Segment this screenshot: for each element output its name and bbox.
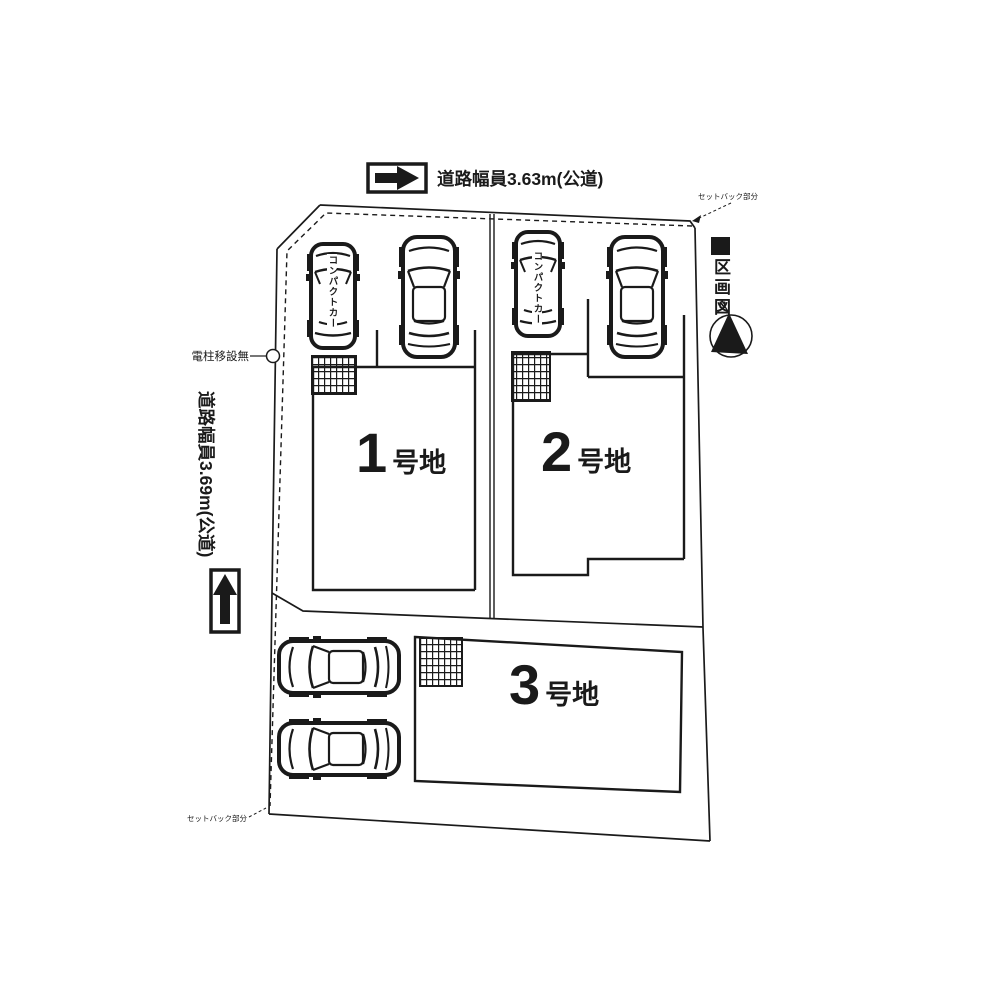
lot2-label: 2号地 (541, 420, 631, 483)
setback-top-label: セットバック部分 (698, 191, 758, 201)
lot2-compact-car-label: コンパクトカー (532, 250, 542, 326)
legend-title: 区画図 (708, 258, 733, 318)
lot2-suffix: 号地 (577, 447, 631, 477)
lot1-suffix: 号地 (392, 448, 446, 478)
setback-top-arrowhead (692, 215, 701, 223)
lot1-hatch-area (312, 356, 356, 394)
setback-top-pointer (695, 203, 731, 220)
setback-bottom-pointer (249, 808, 266, 817)
legend-square-icon (711, 237, 730, 255)
lot3-area-divider (272, 593, 703, 627)
setback-bottom-label: セットバック部分 (187, 813, 247, 823)
lot1-compact-car-label: コンパクトカー (327, 254, 337, 330)
lot1-number: 1 (356, 421, 387, 484)
lot1-lot2-divider (490, 214, 494, 618)
road-direction-arrow-top (368, 164, 426, 192)
utility-pole-icon (267, 350, 280, 363)
lot-plan-drawing: 道路幅員3.63m(公道) セットバック部分 セットバック部分 電柱移設無 N (0, 0, 1000, 990)
lot2-number: 2 (541, 420, 572, 483)
pole-note-label: 電柱移設無 (192, 349, 250, 363)
lot3-suffix: 号地 (545, 680, 599, 710)
lot3-sedan-car-icon-2 (279, 718, 399, 780)
lot3-hatch-area (420, 638, 462, 686)
road-width-top-label: 道路幅員3.63m(公道) (437, 169, 603, 189)
lot3-label: 3号地 (509, 653, 599, 716)
lot3-sedan-car-icon-1 (279, 636, 399, 698)
road-direction-arrow-left (211, 570, 239, 632)
lot3-number: 3 (509, 653, 540, 716)
site-plan-canvas: 道路幅員3.63m(公道) セットバック部分 セットバック部分 電柱移設無 N (0, 0, 1000, 990)
lot1-sedan-car-icon (398, 237, 460, 357)
lot1-label: 1号地 (356, 421, 446, 484)
road-width-left-label: 道路幅員3.69m(公道) (194, 391, 219, 557)
lot2-hatch-area (512, 352, 550, 401)
lot2-sedan-car-icon (606, 237, 668, 357)
